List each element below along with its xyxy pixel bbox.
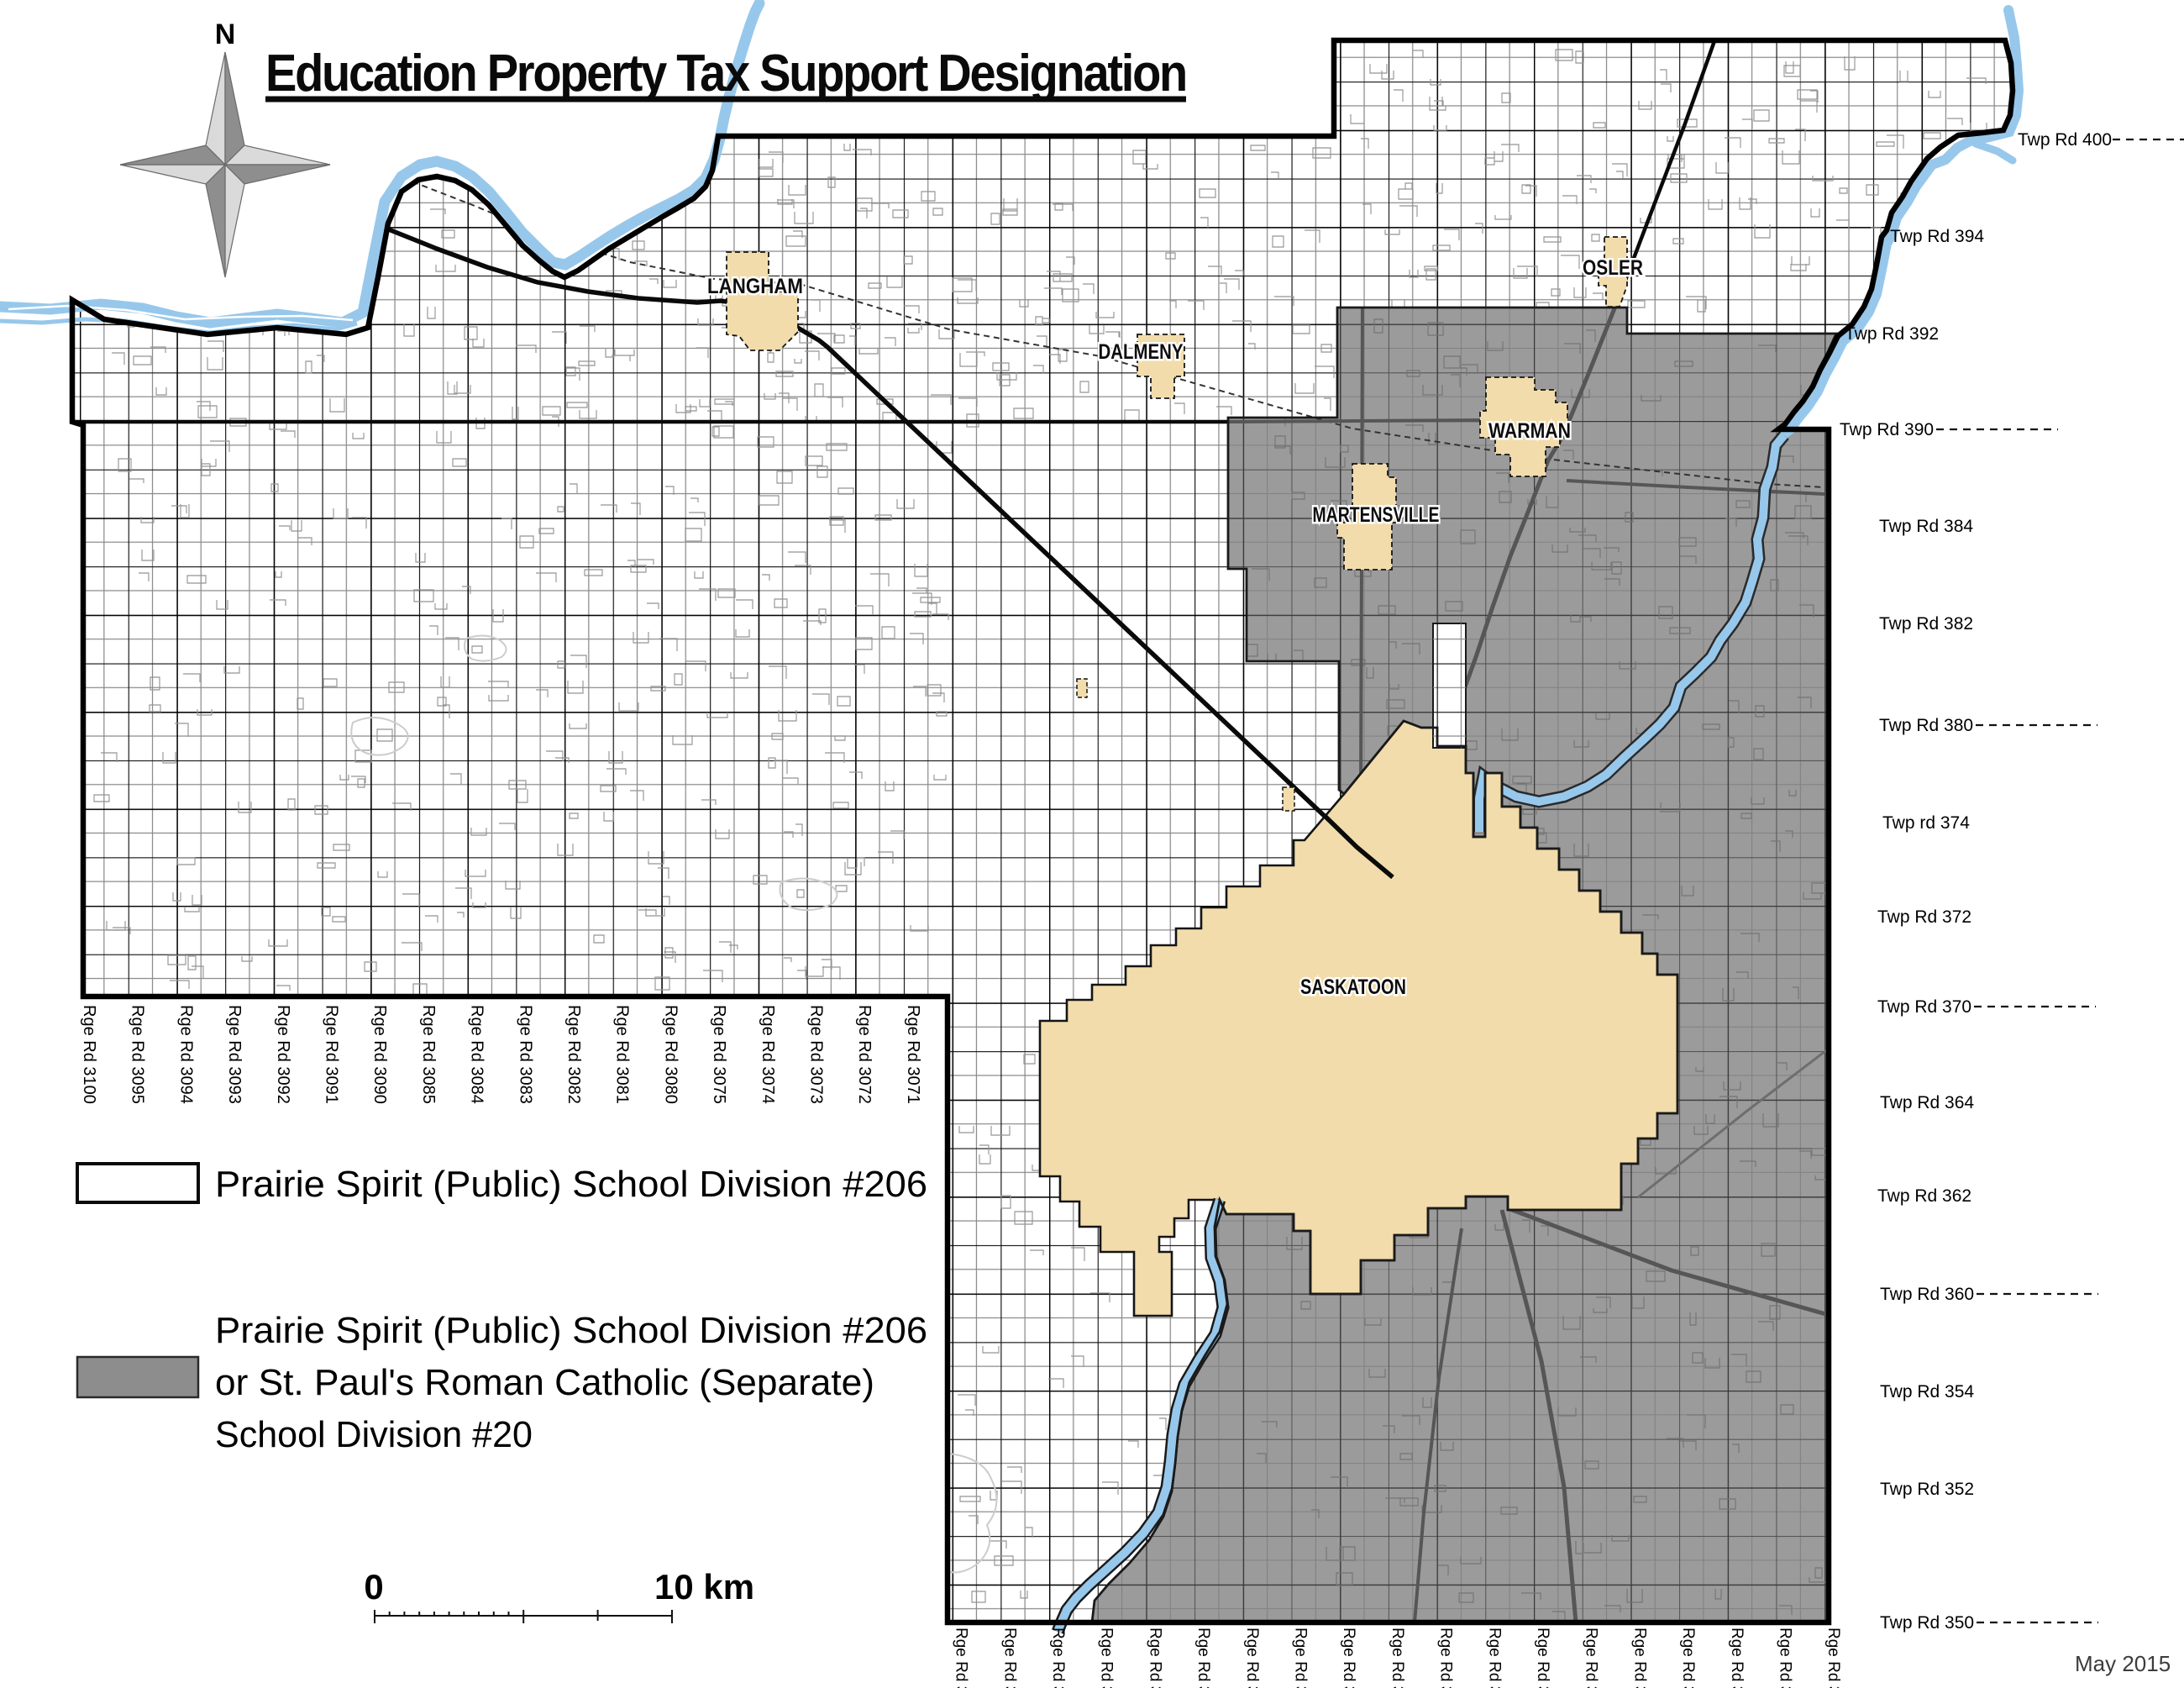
svg-text:Twp Rd 380: Twp Rd 380 [1879,716,1973,735]
svg-text:Rge Rd 3055: Rge Rd 3055 [1292,1628,1310,1688]
svg-text:or St. Paul's Roman Catholic (: or St. Paul's Roman Catholic (Separate) [215,1362,874,1403]
svg-text:Prairie Spirit (Public) School: Prairie Spirit (Public) School Division … [215,1164,927,1205]
svg-text:Twp Rd 384: Twp Rd 384 [1879,517,1973,536]
svg-text:Rge Rd 3084: Rge Rd 3084 [468,1005,486,1104]
svg-text:Rge Rd 3065: Rge Rd 3065 [1000,1628,1018,1688]
svg-text:0: 0 [364,1567,383,1606]
svg-text:OSLER: OSLER [1583,256,1643,280]
svg-text:Twp Rd 394: Twp Rd 394 [1890,227,1984,246]
svg-text:Rge Rd 3082: Rge Rd 3082 [564,1005,583,1104]
svg-text:Rge Rd 3061: Rge Rd 3061 [1194,1628,1212,1688]
svg-text:Rge Rd 3044: Rge Rd 3044 [1630,1628,1648,1688]
svg-text:Education Property Tax Support: Education Property Tax Support Designati… [265,45,1186,103]
svg-text:Rge Rd 3050: Rge Rd 3050 [1534,1628,1551,1688]
svg-text:Rge Rd 3100: Rge Rd 3100 [80,1005,98,1104]
svg-text:Twp Rd 350: Twp Rd 350 [1880,1613,1974,1633]
svg-text:Twp Rd 382: Twp Rd 382 [1879,614,1973,634]
svg-text:10 km: 10 km [654,1567,754,1606]
svg-text:Rge Rd 3053: Rge Rd 3053 [1389,1628,1406,1688]
svg-text:Twp Rd 392: Twp Rd 392 [1845,324,1939,344]
svg-text:Rge Rd 3060: Rge Rd 3060 [1243,1628,1261,1688]
svg-text:Twp Rd 372: Twp Rd 372 [1877,907,1971,927]
svg-text:Rge Rd 3052: Rge Rd 3052 [1437,1628,1455,1688]
svg-text:May 2015: May 2015 [2075,1651,2171,1676]
svg-text:Twp Rd 352: Twp Rd 352 [1880,1480,1974,1499]
svg-text:Rge Rd 3080: Rge Rd 3080 [661,1005,680,1104]
svg-text:WARMAN: WARMAN [1488,419,1571,443]
svg-text:Rge Rd 3071: Rge Rd 3071 [904,1005,922,1104]
svg-text:Rge Rd 3083: Rge Rd 3083 [516,1005,534,1104]
svg-text:Prairie Spirit (Public) School: Prairie Spirit (Public) School Division … [215,1310,927,1351]
svg-text:Rge Rd 3090: Rge Rd 3090 [370,1005,389,1104]
svg-text:Rge Rd 3073: Rge Rd 3073 [807,1005,826,1104]
svg-text:Twp rd 374: Twp rd 374 [1882,813,1970,833]
svg-text:Rge Rd 3093: Rge Rd 3093 [225,1005,244,1104]
svg-text:Twp Rd 370: Twp Rd 370 [1877,997,1971,1017]
svg-text:Rge Rd 3064: Rge Rd 3064 [1049,1628,1067,1688]
svg-text:Twp Rd 354: Twp Rd 354 [1880,1382,1974,1401]
svg-text:Twp Rd 364: Twp Rd 364 [1880,1093,1974,1112]
svg-text:DALMENY: DALMENY [1099,340,1184,364]
svg-text:Rge Rd 3085: Rge Rd 3085 [419,1005,438,1104]
svg-text:Rge Rd 3092: Rge Rd 3092 [274,1005,292,1104]
svg-text:Rge Rd 3070: Rge Rd 3070 [953,1628,970,1688]
svg-text:Rge Rd 3054: Rge Rd 3054 [1340,1628,1357,1688]
svg-text:Rge Rd 3075: Rge Rd 3075 [710,1005,728,1104]
svg-text:Rge Rd 3074: Rge Rd 3074 [759,1005,777,1104]
svg-text:N: N [215,18,236,50]
svg-text:Twp Rd 390: Twp Rd 390 [1840,420,1934,439]
svg-text:Rge Rd 3091: Rge Rd 3091 [323,1005,341,1104]
svg-text:LANGHAM: LANGHAM [707,275,803,298]
svg-text:Twp Rd 360: Twp Rd 360 [1880,1285,1974,1304]
svg-text:Rge Rd 3063: Rge Rd 3063 [1098,1628,1116,1688]
svg-text:MARTENSVILLE: MARTENSVILLE [1313,503,1440,527]
svg-text:Rge Rd 3081: Rge Rd 3081 [613,1005,632,1104]
svg-text:Rge Rd 3040: Rge Rd 3040 [1824,1628,1842,1688]
svg-text:SASKATOON: SASKATOON [1300,975,1406,999]
svg-text:Twp Rd 400: Twp Rd 400 [2018,130,2112,150]
svg-text:Rge Rd 3043: Rge Rd 3043 [1679,1628,1697,1688]
svg-text:Rge Rd 3051: Rge Rd 3051 [1485,1628,1503,1688]
svg-text:Rge Rd 3042: Rge Rd 3042 [1728,1628,1746,1688]
svg-text:Rge Rd 3072: Rge Rd 3072 [855,1005,874,1104]
svg-text:Rge Rd 3062: Rge Rd 3062 [1146,1628,1163,1688]
svg-text:School Division #20: School Division #20 [215,1414,533,1455]
svg-text:Rge Rd 3045: Rge Rd 3045 [1583,1628,1600,1688]
svg-text:Rge Rd 3095: Rge Rd 3095 [129,1005,147,1104]
svg-text:Rge Rd 3094: Rge Rd 3094 [176,1005,195,1104]
svg-text:Twp Rd 362: Twp Rd 362 [1877,1186,1971,1206]
svg-text:Rge Rd 3041: Rge Rd 3041 [1777,1628,1794,1688]
